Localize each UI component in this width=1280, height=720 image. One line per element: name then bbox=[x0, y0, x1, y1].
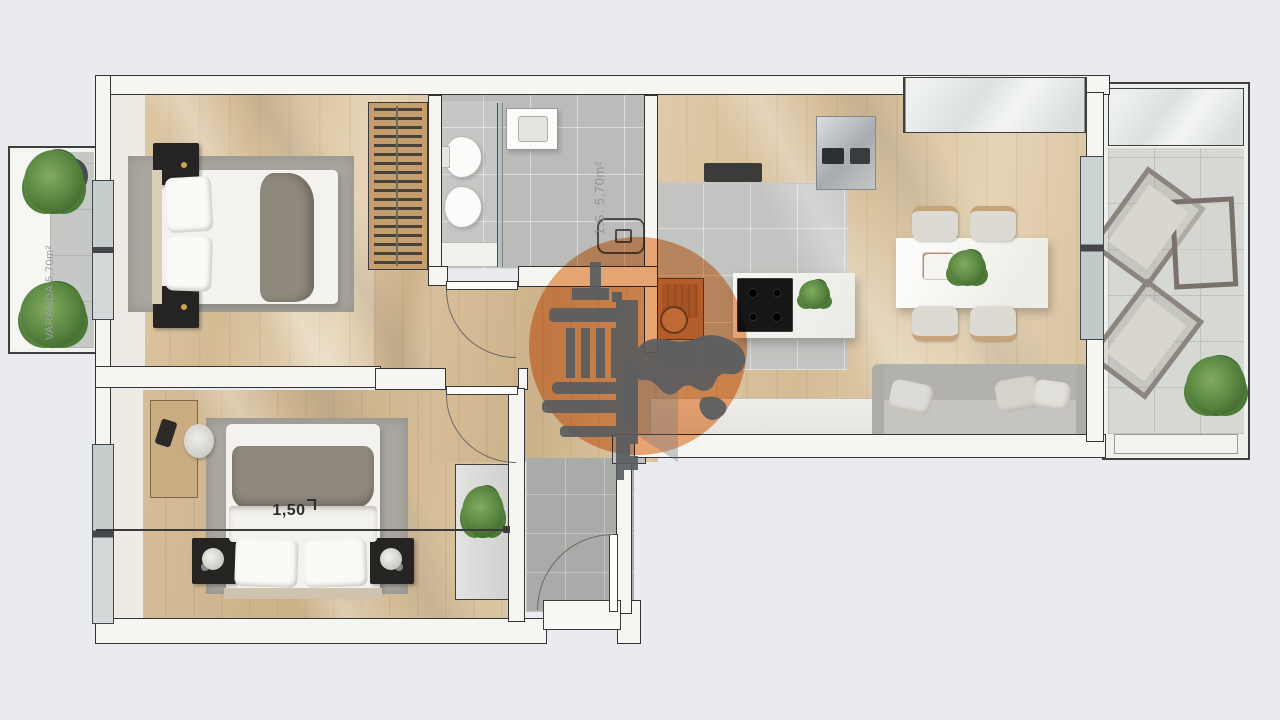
wardrobe-rail bbox=[396, 106, 398, 266]
bedroom2-lamp-right bbox=[380, 548, 402, 570]
bedroom2-sill-strip bbox=[109, 390, 143, 624]
bedroom2-pillow-right bbox=[303, 538, 368, 588]
bedroom2-lamp-left bbox=[202, 548, 224, 570]
sofa-armrest-left bbox=[872, 364, 884, 444]
dimension-value: 1,50 bbox=[272, 502, 305, 519]
dining-chair-bottom-left bbox=[912, 306, 958, 341]
living-top-window bbox=[903, 77, 1087, 133]
dining-chair-top-right bbox=[970, 206, 1016, 241]
bedroom1-headboard bbox=[152, 170, 162, 304]
column-and-map-glyph bbox=[542, 262, 745, 480]
bathroom-door-leaf bbox=[446, 281, 518, 290]
balcony-sliding-door bbox=[1080, 156, 1104, 340]
range-hood bbox=[704, 163, 762, 182]
bedroom1-window bbox=[92, 180, 114, 320]
wall-bedroom2-north-a bbox=[375, 368, 446, 390]
dimension-label: 1,50 bbox=[256, 502, 332, 520]
dimension-tick bbox=[307, 499, 316, 510]
sink-bowl-right bbox=[850, 148, 870, 164]
dining-chair-top-left bbox=[912, 206, 958, 241]
balcony-area-label: VARANDA 5,70m² bbox=[44, 195, 56, 340]
wardrobe-clothes bbox=[374, 108, 422, 264]
balcony-right-white-strip bbox=[1114, 434, 1238, 454]
glass-partition bbox=[497, 103, 503, 267]
bedroom2-door-leaf bbox=[446, 386, 518, 395]
sofa-pillow-right bbox=[1032, 379, 1072, 412]
island-plant bbox=[799, 280, 830, 309]
watermark-logo bbox=[520, 230, 760, 480]
bedroom1-nightstand-bottom-knob bbox=[181, 304, 187, 310]
washbasin-bowl bbox=[518, 116, 548, 142]
dining-chair-bottom-right bbox=[970, 306, 1016, 341]
dimension-end-dot bbox=[503, 526, 510, 533]
bedroom2-blanket bbox=[232, 446, 374, 508]
bedroom1-nightstand-top-knob bbox=[181, 162, 187, 168]
bedroom2-window bbox=[92, 444, 114, 624]
desk-chair bbox=[184, 424, 214, 458]
wall-bathroom-west bbox=[428, 95, 442, 271]
wall-bottom-left bbox=[95, 618, 547, 644]
bedroom1-throw-blanket bbox=[260, 173, 314, 302]
bedroom2-headboard bbox=[224, 588, 382, 599]
bedroom1-pillow-top bbox=[165, 176, 214, 233]
wall-bathroom-south-a bbox=[428, 266, 448, 286]
dining-plant bbox=[948, 250, 986, 286]
bedroom1-pillow-bottom bbox=[165, 235, 213, 292]
bathroom-area-label: 1.S. 5,70m² bbox=[592, 110, 607, 235]
shower-tray bbox=[438, 242, 498, 267]
dimension-line bbox=[96, 529, 508, 531]
bedroom2-pillow-left bbox=[234, 538, 299, 588]
balcony-right-glass-top bbox=[1108, 88, 1244, 146]
balcony-right-plant bbox=[1186, 356, 1246, 416]
sink-bowl-left bbox=[822, 148, 844, 164]
passage-floor bbox=[374, 266, 432, 370]
floor-plan-canvas: 1,50 1.S. 5,70m² VARANDA 5,70m² bbox=[0, 0, 1280, 720]
wall-bedrooms-divider bbox=[95, 366, 381, 388]
